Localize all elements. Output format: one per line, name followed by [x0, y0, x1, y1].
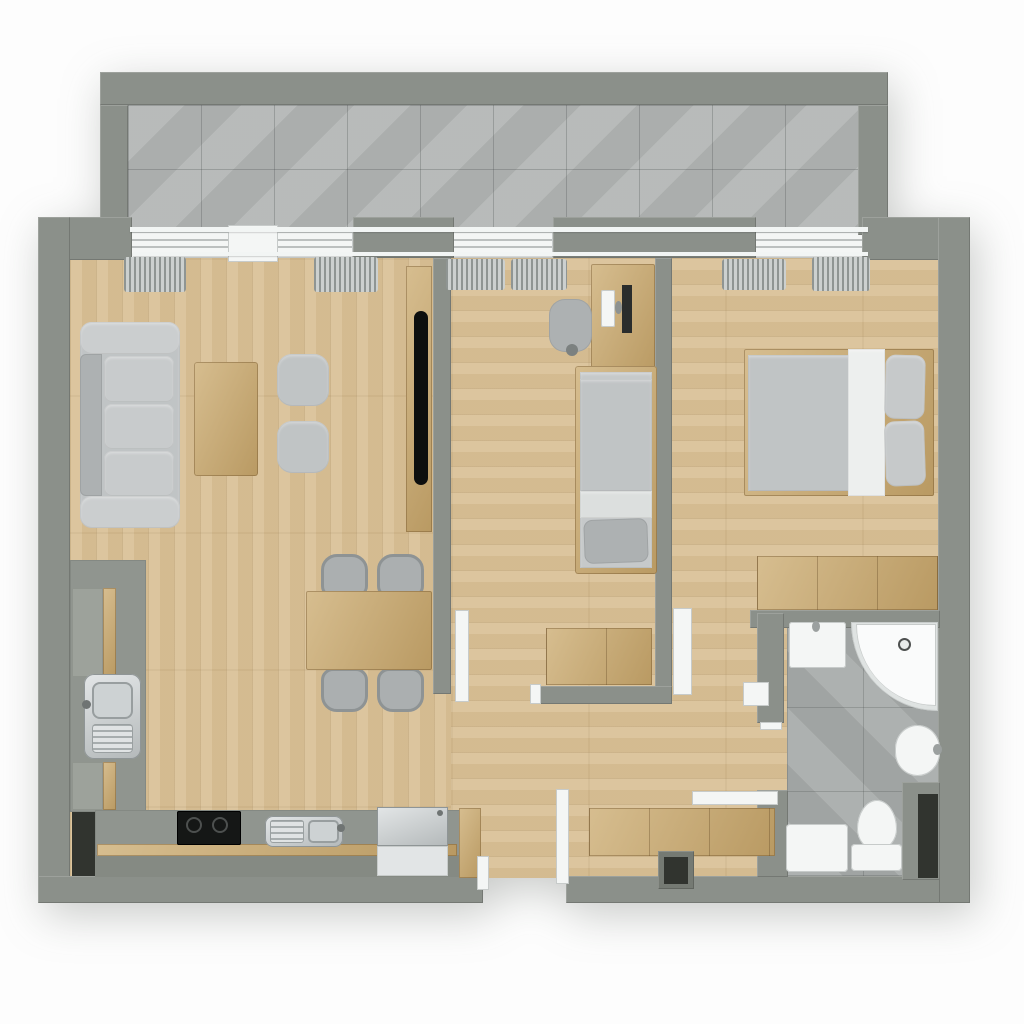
curtain-small-right [511, 259, 567, 290]
sofa-backrest [80, 354, 102, 496]
floor-plan-screenshot [0, 0, 1024, 1024]
wall-small-bedroom-south [532, 686, 672, 704]
door-frame-bathroom [760, 722, 782, 730]
entry-door-jamb [477, 856, 489, 890]
refrigerator-front [377, 846, 448, 876]
door-small-bedroom [455, 610, 469, 702]
sofa-cushion-2 [104, 404, 174, 449]
kitchen-sink-bowl [92, 682, 133, 719]
entry-door [556, 789, 569, 884]
desk-monitor-stand [615, 301, 622, 314]
outer-wall-south-east [566, 876, 940, 903]
toilet-tank [851, 844, 902, 871]
balcony-wall-left [100, 105, 128, 235]
balcony-wall-right [858, 105, 888, 235]
wall-small-master-bedroom [655, 258, 672, 704]
cooktop-burner-1 [186, 817, 202, 833]
kitchen-faucet [82, 700, 91, 709]
dining-chair-4 [377, 668, 424, 712]
master-bed-blanket [848, 349, 885, 496]
sink-2-drainboard [270, 820, 304, 843]
sofa-armrest-top [80, 322, 180, 354]
sink-2-bowl [308, 820, 339, 843]
single-bed-pillow [583, 518, 648, 564]
tv-screen [414, 311, 428, 485]
door-frame-small-bedroom [530, 684, 541, 704]
sofa-cushion-3 [104, 451, 174, 496]
toilet-bowl [857, 800, 897, 850]
sink-2-faucet [337, 824, 345, 832]
desk-chair-base [566, 344, 578, 356]
curtain-small-left [446, 259, 505, 290]
master-pillow-1 [884, 354, 926, 419]
desk-keyboard [601, 290, 615, 327]
sofa-armrest-bottom [80, 496, 180, 528]
coffee-table [194, 362, 258, 476]
dining-chair-3 [321, 668, 368, 712]
single-bed-duvet [580, 379, 652, 491]
pouf-2 [277, 421, 329, 473]
master-bed-duvet [748, 355, 851, 491]
outer-wall-south-west [38, 876, 483, 903]
desk-monitor [622, 285, 632, 333]
washing-machine [786, 824, 848, 872]
balcony-rail [130, 227, 868, 232]
kitchen-cabinet-upper-front [103, 588, 116, 677]
wall-bathroom-west-upper [757, 613, 784, 723]
entry-niche [664, 857, 688, 884]
shower-drain [898, 638, 911, 651]
master-pillow-2 [884, 420, 926, 486]
master-dresser [757, 556, 938, 610]
hall-sideboard [589, 808, 775, 856]
pouf-1 [277, 354, 329, 406]
kitchen-cabinet-lower-front [103, 762, 116, 810]
kitchen-cabinet-upper [72, 588, 103, 677]
curtain-master-right [812, 257, 870, 291]
bidet-faucet [933, 744, 942, 755]
wall-living-small-bedroom [433, 258, 451, 694]
door-master-bedroom [673, 608, 692, 695]
balcony-wall-top [100, 72, 888, 105]
kitchen-niche [72, 812, 95, 876]
outer-wall-west [38, 217, 70, 903]
apartment-floor-plan [0, 0, 1024, 1024]
curtain-living-right [314, 257, 378, 292]
single-bed-sheet [580, 491, 652, 518]
sofa-cushion-1 [104, 356, 174, 402]
refrigerator-handle [437, 810, 443, 816]
kitchen-sink-drainboard [92, 724, 133, 753]
curtain-rail [133, 252, 868, 256]
chest-small-bedroom [546, 628, 652, 685]
door-bathroom [692, 791, 778, 805]
bathroom-cabinet-niche [918, 794, 938, 878]
kitchen-cabinet-lower [72, 762, 103, 810]
curtain-living-left [124, 257, 186, 292]
cooktop-burner-2 [212, 817, 228, 833]
washbasin-faucet [812, 621, 820, 632]
dining-table [306, 591, 432, 670]
balcony-floor [128, 105, 858, 233]
outer-wall-east [938, 217, 970, 903]
hall-shelf [743, 682, 769, 706]
curtain-master-left [722, 259, 786, 290]
